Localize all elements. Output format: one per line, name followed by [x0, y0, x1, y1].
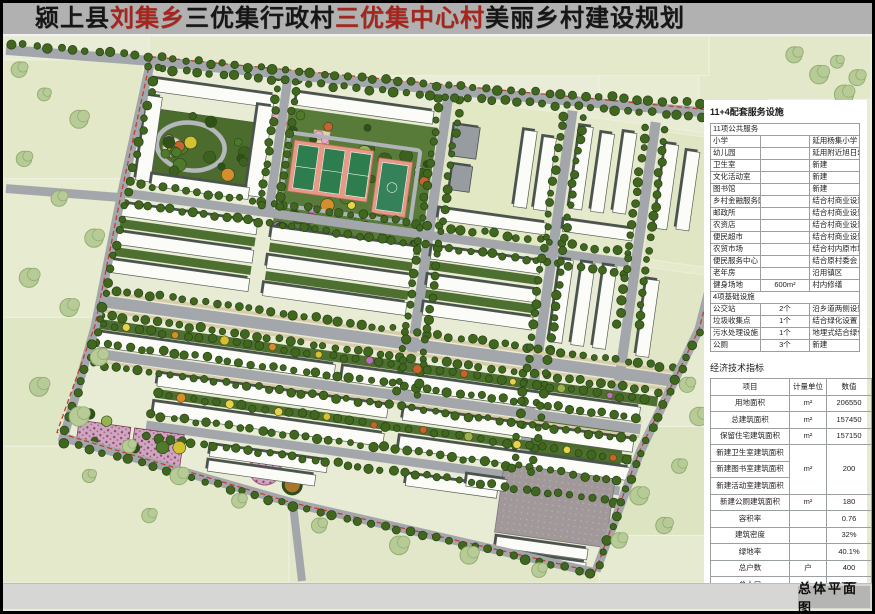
economic-indicators-table: 项目计量单位数值用地面积m²206550总建筑面积m²157450保留住宅建筑面… — [710, 378, 872, 594]
service-row: 农资店结合村商业设置 — [711, 220, 860, 232]
service-row: 文化活动室新建 — [711, 172, 860, 184]
site-plan-area: 11+4配套服务设施 11项公共服务小学延用杨集小学幼儿园延用附近旭日幼儿园卫生… — [3, 36, 872, 583]
service-row: 健身场地600m²村内修缮 — [711, 280, 860, 292]
service-row: 便民超市结合村商业设置 — [711, 232, 860, 244]
service-row: 公交站2个沿乡道两侧设置两处 — [711, 304, 860, 316]
service-row: 乡村金融服务网点结合村商业设置 — [711, 196, 860, 208]
legend-panel: 11+4配套服务设施 11项公共服务小学延用杨集小学幼儿园延用附近旭日幼儿园卫生… — [704, 100, 867, 600]
service-row: 老年房沿用镇区 — [711, 268, 860, 280]
economic-row: 保留住宅建筑面积m²157150 — [711, 428, 872, 445]
economic-row: 绿地率40.1% — [711, 544, 872, 561]
sheet-title-bar: 颍上县刘集乡三优集行政村三优集中心村美丽乡村建设规划 — [3, 3, 872, 36]
economic-row: 容积率0.76 — [711, 511, 872, 528]
service-row: 公厕3个新建 — [711, 340, 860, 352]
service-row: 农贸市场结合村内原市场 — [711, 244, 860, 256]
service-row: 邮政所结合村商业设置 — [711, 208, 860, 220]
service-row: 图书馆新建 — [711, 184, 860, 196]
title-segment: 三优集中心村 — [335, 5, 485, 32]
economic-header-row: 项目计量单位数值 — [711, 379, 872, 396]
legend-heading: 11+4配套服务设施 — [710, 105, 863, 118]
title-segment: 三优集行政村 — [185, 5, 335, 32]
title-segment: 颍上县 — [35, 5, 110, 32]
title-segment: 美丽乡村建设规划 — [485, 5, 685, 32]
economic-row: 用地面积m²206550 — [711, 395, 872, 412]
economic-indicators-title: 经济技术指标 — [710, 361, 863, 374]
service-row: 垃圾收集点1个结合绿化设置 — [711, 316, 860, 328]
economic-row: 建筑密度32% — [711, 527, 872, 544]
economic-row: 总户数户400 — [711, 560, 872, 577]
economic-row: 新建卫生室建筑面积m²200 — [711, 445, 872, 462]
page-title: 颍上县刘集乡三优集行政村三优集中心村美丽乡村建设规划 — [35, 7, 685, 31]
services-section-header: 4项基础设施 — [711, 292, 860, 304]
service-row: 污水处理设施1个地埋式结合绿化设置 — [711, 328, 860, 340]
public-building — [449, 164, 472, 192]
service-row: 便民服务中心结合原村委会 — [711, 256, 860, 268]
service-row: 卫生室新建 — [711, 160, 860, 172]
service-row: 小学延用杨集小学 — [711, 136, 860, 148]
title-segment: 刘集乡 — [110, 5, 185, 32]
services-section-header: 11项公共服务 — [711, 124, 860, 136]
plan-sheet: 颍上县刘集乡三优集行政村三优集中心村美丽乡村建设规划 11+4配套服务设施 11… — [0, 0, 875, 614]
drawing-title-box: 总体平面图 — [798, 586, 870, 608]
service-row: 幼儿园延用附近旭日幼儿园 — [711, 148, 860, 160]
services-table: 11项公共服务小学延用杨集小学幼儿园延用附近旭日幼儿园卫生室新建文化活动室新建图… — [710, 123, 860, 352]
sheet-footer-bar: 总体平面图 — [3, 583, 872, 609]
economic-row: 新建公厕建筑面积m²180 — [711, 494, 872, 511]
economic-row: 总建筑面积m²157450 — [711, 412, 872, 429]
